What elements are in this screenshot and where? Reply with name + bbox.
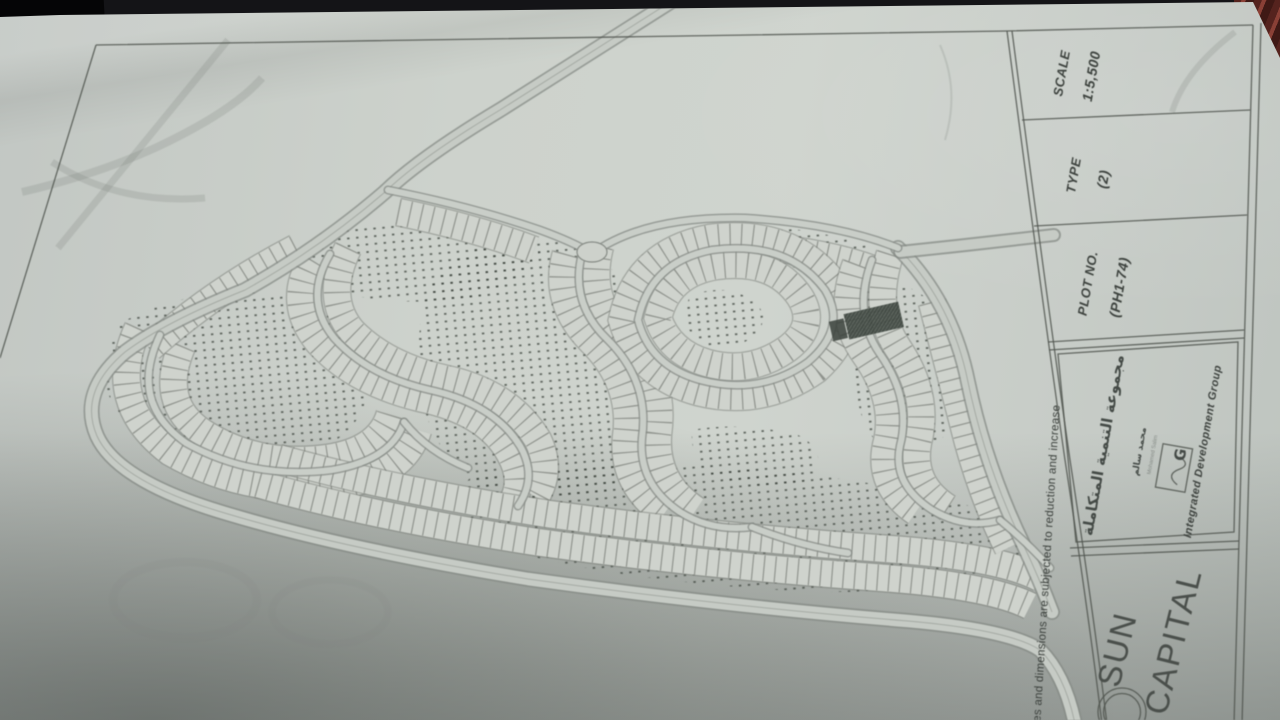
type-label: TYPE bbox=[1063, 156, 1084, 194]
photo-of-site-plan: SCALE 1:5,500 TYPE (2) PLOT NO. (PH1-74)… bbox=[0, 0, 1280, 720]
traffic-island bbox=[577, 242, 607, 262]
plot-no-label: PLOT NO. bbox=[1075, 250, 1101, 317]
sun-capital-emblem-inner bbox=[1104, 694, 1141, 720]
site-plan-drawing: SCALE 1:5,500 TYPE (2) PLOT NO. (PH1-74)… bbox=[0, 0, 1280, 720]
plot-no-value: (PH1-74) bbox=[1106, 256, 1132, 319]
developer-signature-latin: Mohamed Salim bbox=[1147, 434, 1160, 475]
developer-name-arabic: مجموعة التنمية المتكاملة bbox=[1078, 353, 1128, 537]
project-name-line1: SUN bbox=[1090, 608, 1144, 690]
idg-logo-letter: G bbox=[1170, 447, 1190, 462]
scale-label: SCALE bbox=[1050, 49, 1073, 97]
scale-value: 1:5,500 bbox=[1079, 50, 1104, 103]
title-block: SCALE 1:5,500 TYPE (2) PLOT NO. (PH1-74)… bbox=[1050, 49, 1224, 718]
type-value: (2) bbox=[1094, 169, 1113, 190]
project-name-line2: CAPITAL bbox=[1137, 564, 1209, 718]
paper-sheet: SCALE 1:5,500 TYPE (2) PLOT NO. (PH1-74)… bbox=[0, 0, 1280, 720]
idg-logo: G bbox=[1155, 444, 1192, 493]
